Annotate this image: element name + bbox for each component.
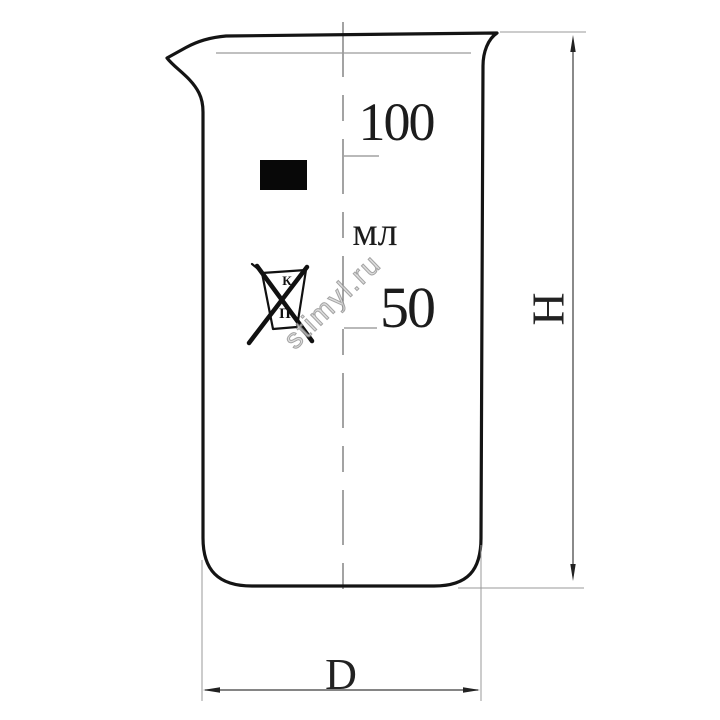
beaker-drawing-canvas: 100 мл 50 К П stimyl.ru H bbox=[0, 0, 720, 720]
dimension-label-d: D bbox=[325, 650, 357, 699]
watermark-text: stimyl.ru bbox=[278, 248, 387, 355]
h-arrow-down-icon bbox=[570, 564, 575, 581]
fill-mark-rect bbox=[260, 160, 307, 190]
logo-letter-p: П bbox=[279, 306, 291, 322]
beaker-technical-drawing: 100 мл 50 К П stimyl.ru H bbox=[0, 0, 720, 720]
d-arrow-right-icon bbox=[463, 687, 480, 692]
dimension-label-h: H bbox=[523, 292, 574, 325]
volume-label-100: 100 bbox=[359, 92, 434, 152]
d-arrow-left-icon bbox=[203, 687, 220, 692]
volume-label-50: 50 bbox=[380, 275, 434, 340]
unit-label: мл bbox=[352, 209, 397, 254]
height-dimension: H bbox=[458, 32, 586, 588]
h-arrow-up-icon bbox=[570, 35, 575, 52]
logo-letter-k: К bbox=[282, 273, 292, 288]
diameter-dimension: D bbox=[202, 545, 481, 701]
